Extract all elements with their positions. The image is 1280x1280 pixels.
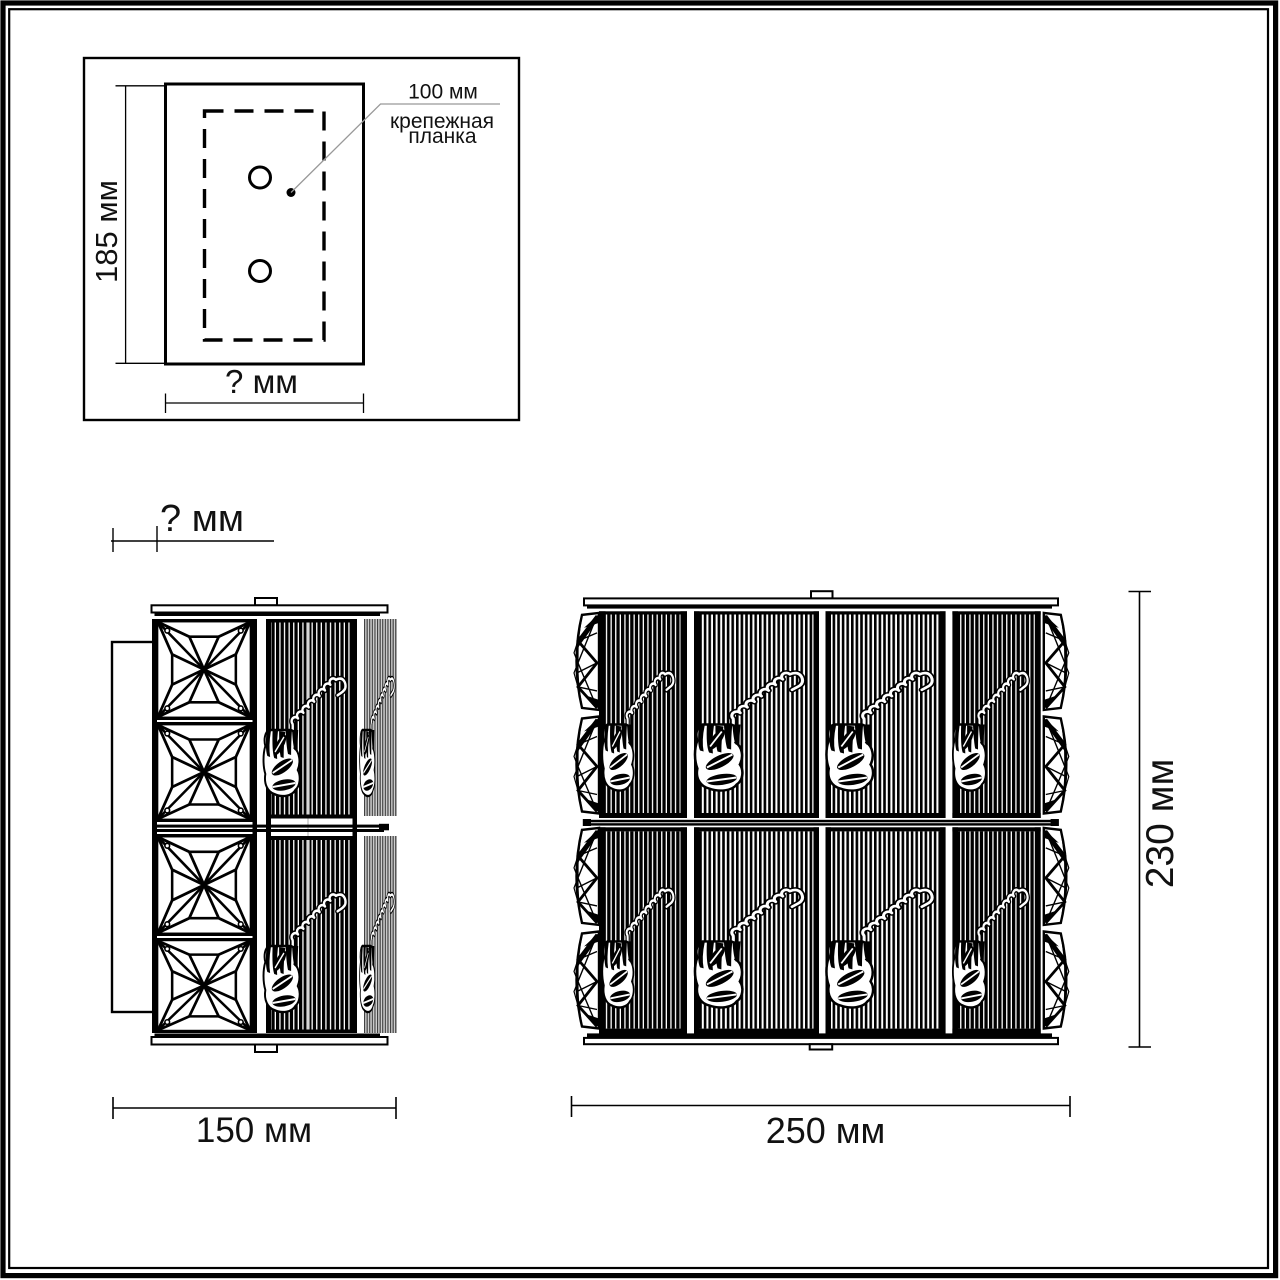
- svg-text:185 мм: 185 мм: [89, 180, 124, 283]
- svg-text:? мм: ? мм: [225, 363, 298, 400]
- svg-text:планка: планка: [408, 125, 477, 148]
- svg-text:100 мм: 100 мм: [408, 81, 478, 104]
- svg-text:250 мм: 250 мм: [766, 1110, 886, 1151]
- svg-text:230 мм: 230 мм: [1139, 759, 1182, 889]
- svg-text:150 мм: 150 мм: [196, 1111, 312, 1150]
- svg-text:? мм: ? мм: [160, 498, 244, 540]
